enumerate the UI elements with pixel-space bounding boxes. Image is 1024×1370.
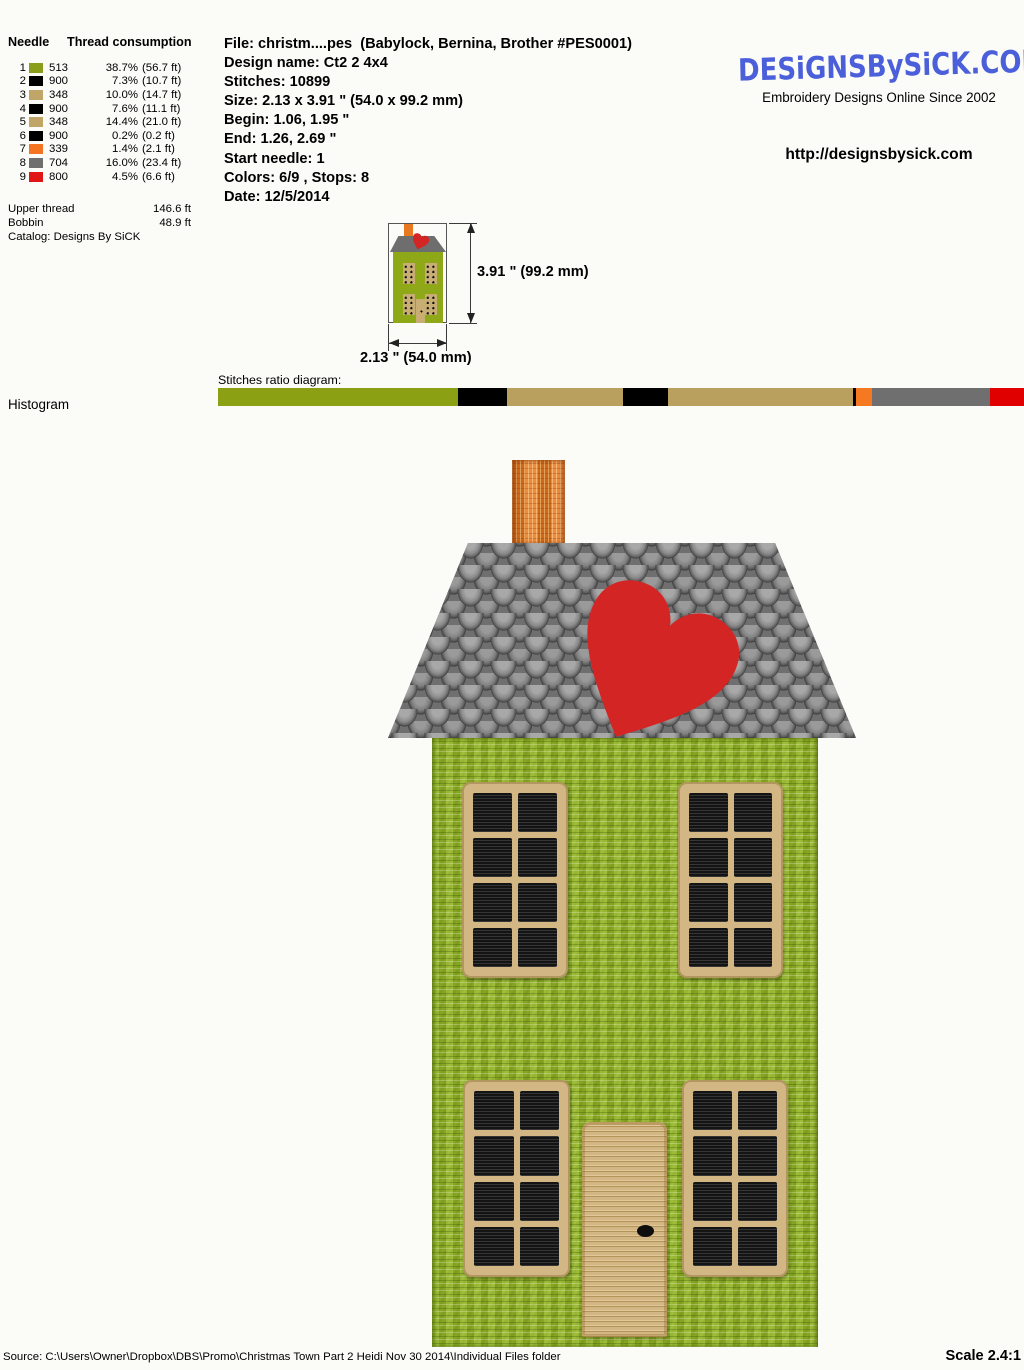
needle-row: 69000.2%(0.2 ft) (8, 129, 181, 143)
ratio-bar-segment (507, 388, 623, 406)
needle-number: 8 (8, 157, 26, 169)
ratio-bar-segment (990, 388, 1024, 406)
bobbin-label: Bobbin (8, 216, 43, 230)
thread-code: 348 (49, 89, 82, 101)
thread-color-swatch (29, 144, 43, 154)
thread-length: (10.7 ft) (142, 75, 181, 87)
window-pane (520, 1227, 560, 1266)
needle-number: 7 (8, 143, 26, 155)
thread-length: (11.1 ft) (142, 103, 180, 115)
thread-consumption-column-header: Thread consumption (67, 35, 192, 49)
thread-code: 800 (49, 171, 82, 183)
needle-row: 870416.0%(23.4 ft) (8, 156, 181, 170)
thread-percent: 38.7% (82, 62, 138, 74)
thread-percent: 0.2% (82, 130, 138, 142)
thread-percent: 10.0% (82, 89, 138, 101)
ratio-bar-segment (668, 388, 853, 406)
window-pane (520, 1091, 560, 1130)
window-pane (518, 793, 557, 832)
thread-percent: 4.5% (82, 171, 138, 183)
thread-length: (23.4 ft) (142, 157, 181, 169)
window-pane (473, 928, 512, 967)
ratio-bar-segment (458, 388, 507, 406)
needle-row: 98004.5%(6.6 ft) (8, 170, 181, 184)
thread-length: (56.7 ft) (142, 62, 181, 74)
width-dimension-label: 2.13 " (54.0 mm) (360, 350, 472, 366)
window-pane (473, 883, 512, 922)
window-pane (474, 1091, 514, 1130)
window-upper-right (678, 782, 783, 978)
needle-column-header: Needle (8, 35, 49, 49)
bobbin-value: 48.9 ft (159, 216, 191, 230)
window-pane (738, 1091, 777, 1130)
thread-code: 900 (49, 75, 82, 87)
window-pane (693, 1091, 732, 1130)
needle-row: 49007.6%(11.1 ft) (8, 102, 181, 116)
needle-number: 1 (8, 62, 26, 74)
ratio-bar-segment (623, 388, 667, 406)
file-name-line: File: christm....pes (Babylock, Bernina,… (224, 35, 632, 54)
window-pane (473, 793, 512, 832)
file-info: File: christm....pes (Babylock, Bernina,… (224, 35, 632, 207)
doorknob (637, 1225, 654, 1237)
needle-number: 4 (8, 103, 26, 115)
window-pane (689, 883, 728, 922)
needle-row: 29007.3%(10.7 ft) (8, 75, 181, 89)
window-pane (734, 838, 773, 877)
start-needle-line: Start needle: 1 (224, 150, 632, 169)
end-line: End: 1.26, 2.69 " (224, 130, 632, 149)
catalog-line: Catalog: Designs By SiCK (8, 230, 191, 244)
stitches-ratio-bar (218, 388, 1024, 406)
bobbin-row: Bobbin 48.9 ft (8, 216, 191, 230)
arrow-up-icon (467, 223, 475, 233)
window-pane (693, 1227, 732, 1266)
thread-percent: 14.4% (82, 116, 138, 128)
mini-window-lower-right (425, 294, 437, 315)
size-line: Size: 2.13 x 3.91 " (54.0 x 99.2 mm) (224, 92, 632, 111)
needle-row: 334810.0%(14.7 ft) (8, 88, 181, 102)
window-pane (738, 1227, 777, 1266)
window-pane (734, 793, 773, 832)
thread-summary: Upper thread 146.6 ft Bobbin 48.9 ft Cat… (8, 202, 191, 245)
thread-percent: 1.4% (82, 143, 138, 155)
window-pane (689, 928, 728, 967)
thread-code: 339 (49, 143, 82, 155)
arrow-right-icon (437, 339, 447, 347)
colors-stops-line: Colors: 6/9 , Stops: 8 (224, 169, 632, 188)
window-pane (473, 838, 512, 877)
date-line: Date: 12/5/2014 (224, 188, 632, 207)
house-door (582, 1122, 667, 1337)
thread-length: (6.6 ft) (142, 171, 175, 183)
window-pane (734, 883, 773, 922)
logo-tagline: Embroidery Designs Online Since 2002 (738, 90, 1020, 105)
thread-length: (2.1 ft) (142, 143, 175, 155)
mini-window-upper-right (425, 263, 437, 284)
arrow-down-icon (467, 313, 475, 323)
scale-label: Scale 2.4:1 (946, 1348, 1021, 1364)
begin-line: Begin: 1.06, 1.95 " (224, 111, 632, 130)
window-panes (473, 793, 557, 967)
window-panes (693, 1091, 777, 1266)
thread-percent: 16.0% (82, 157, 138, 169)
thread-code: 348 (49, 116, 82, 128)
page: Needle Thread consumption 151338.7%(56.7… (0, 0, 1024, 1370)
window-pane (693, 1136, 732, 1175)
ratio-bar-segment (872, 388, 990, 406)
window-pane (474, 1227, 514, 1266)
needle-number: 5 (8, 116, 26, 128)
window-pane (474, 1136, 514, 1175)
needle-row: 73391.4%(2.1 ft) (8, 143, 181, 157)
window-pane (518, 883, 557, 922)
window-pane (518, 928, 557, 967)
thread-color-swatch (29, 90, 43, 100)
thread-color-swatch (29, 117, 43, 127)
window-pane (520, 1182, 560, 1221)
thread-code: 513 (49, 62, 82, 74)
histogram-section-label: Histogram (8, 397, 69, 412)
thread-color-swatch (29, 76, 43, 86)
house-chimney (512, 460, 565, 544)
website-url: http://designsbysick.com (733, 146, 1024, 164)
window-pane (738, 1136, 777, 1175)
needle-number: 6 (8, 130, 26, 142)
window-pane (689, 838, 728, 877)
thread-color-swatch (29, 158, 43, 168)
upper-thread-row: Upper thread 146.6 ft (8, 202, 191, 216)
window-panes (474, 1091, 559, 1266)
design-name-line: Design name: Ct2 2 4x4 (224, 54, 632, 73)
thread-code: 704 (49, 157, 82, 169)
upper-thread-label: Upper thread (8, 202, 75, 216)
thread-code: 900 (49, 103, 82, 115)
mini-window-lower-left (403, 294, 415, 315)
window-pane (738, 1182, 777, 1221)
window-pane (518, 838, 557, 877)
arrow-left-icon (389, 339, 399, 347)
stitches-line: Stitches: 10899 (224, 73, 632, 92)
upper-thread-value: 146.6 ft (153, 202, 191, 216)
window-panes (689, 793, 772, 967)
window-upper-left (462, 782, 568, 978)
stitches-ratio-title: Stitches ratio diagram: (218, 373, 341, 387)
thread-percent: 7.6% (82, 103, 138, 115)
thread-color-swatch (29, 104, 43, 114)
window-lower-left (463, 1080, 570, 1277)
window-pane (520, 1136, 560, 1175)
thread-percent: 7.3% (82, 75, 138, 87)
thread-length: (14.7 ft) (142, 89, 181, 101)
ratio-bar-segment (218, 388, 458, 406)
dim-cap-bottom (449, 323, 477, 324)
thread-code: 900 (49, 130, 82, 142)
height-dimension-line (470, 223, 471, 323)
needle-number: 3 (8, 89, 26, 101)
window-pane (734, 928, 773, 967)
mini-window-upper-left (403, 263, 415, 284)
thread-color-swatch (29, 63, 43, 73)
source-path: Source: C:\Users\Owner\Dropbox\DBS\Promo… (3, 1351, 561, 1363)
needle-number: 2 (8, 75, 26, 87)
window-lower-right (682, 1080, 788, 1277)
designsbysick-logo: DESiGNSBySiCK.COM (738, 45, 1021, 89)
needle-row: 151338.7%(56.7 ft) (8, 61, 181, 75)
thread-length: (21.0 ft) (142, 116, 181, 128)
ratio-bar-segment (856, 388, 873, 406)
window-pane (689, 793, 728, 832)
needle-rows: 151338.7%(56.7 ft)29007.3%(10.7 ft)33481… (8, 61, 181, 183)
window-pane (693, 1182, 732, 1221)
height-dimension-label: 3.91 " (99.2 mm) (477, 264, 589, 280)
needle-number: 9 (8, 171, 26, 183)
needle-row: 534814.4%(21.0 ft) (8, 115, 181, 129)
thread-color-swatch (29, 172, 43, 182)
thread-length: (0.2 ft) (142, 130, 175, 142)
window-pane (474, 1182, 514, 1221)
mini-house-door (416, 299, 425, 323)
thread-color-swatch (29, 131, 43, 141)
embroidery-house-artwork (388, 450, 867, 1347)
